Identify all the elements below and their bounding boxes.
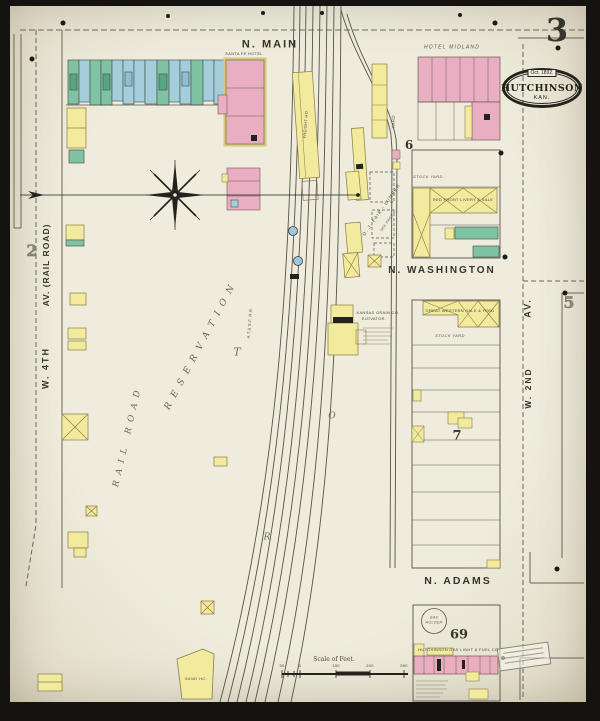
street-n-adams: N. ADAMS bbox=[424, 576, 492, 587]
label-hotel-midland: HOTEL MIDLAND bbox=[424, 46, 480, 51]
label-grain-elevator: ELEVATOR. bbox=[362, 317, 387, 321]
label-great-western: GREAT WESTERN SALE & FEED bbox=[426, 309, 495, 313]
street-w-4th: W. 4TH bbox=[42, 347, 51, 389]
label-gas-holder-1: GAS bbox=[430, 616, 439, 620]
stone-row-buildings bbox=[66, 60, 228, 105]
label-santa-fe-hotel: SANTA FE HOTEL bbox=[225, 52, 263, 56]
stray-letter: O bbox=[328, 413, 335, 422]
stamp-date: Oct. 1892. bbox=[527, 69, 556, 77]
label-red-front-livery: RED FRONT LIVERY & SALE bbox=[433, 198, 493, 202]
stamp-state: KAN. bbox=[534, 95, 551, 101]
stray-letter: T bbox=[233, 347, 240, 358]
scale-tick-0: 0 bbox=[299, 664, 302, 668]
library-stamp-line bbox=[505, 657, 545, 664]
water-tanks bbox=[289, 227, 303, 280]
sanborn-map-sheet: 3 Oct. 1892. HUTCHINSON KAN. N. MAIN N. … bbox=[0, 0, 600, 721]
block-number-2: 2 bbox=[26, 243, 37, 259]
hotel-midland-block bbox=[418, 57, 500, 140]
scale-bar bbox=[282, 670, 408, 678]
stray-letter: R bbox=[264, 534, 271, 543]
street-av-east: AV. bbox=[524, 298, 533, 318]
block-number-6: 6 bbox=[405, 139, 413, 151]
label-grain-co: KANSAS GRAIN CO. bbox=[356, 311, 399, 315]
block-number-69: 69 bbox=[450, 629, 468, 642]
street-n-washington: N. WASHINGTON bbox=[388, 266, 495, 276]
label-sand-house: SAND HO. bbox=[185, 677, 208, 681]
block-6 bbox=[412, 150, 500, 258]
block-number-5: 5 bbox=[563, 295, 574, 311]
map-linework bbox=[0, 0, 600, 721]
label-gas-works: HUTCHINSON GAS LIGHT & FUEL CO. bbox=[418, 648, 500, 652]
block-number-7: 7 bbox=[452, 430, 461, 443]
street-w-2nd: W. 2ND bbox=[524, 367, 533, 408]
scale-tick-100: 100 bbox=[332, 664, 340, 668]
city-stamp: Oct. 1892. HUTCHINSON KAN. bbox=[502, 68, 582, 108]
street-n-main: N. MAIN bbox=[242, 40, 298, 51]
sheet-number: 3 bbox=[546, 14, 568, 46]
scale-tick-50: 50 bbox=[279, 664, 284, 668]
sand-house-building bbox=[177, 649, 214, 699]
label-yard: YARD bbox=[392, 115, 397, 129]
label-stock-yard-7: STOCK YARD bbox=[435, 334, 465, 338]
street-av-railroad: AV. (RAIL ROAD) bbox=[42, 224, 51, 307]
scale-tick-300: 300 bbox=[400, 664, 408, 668]
label-stock-yard-6: STOCK YARD bbox=[413, 175, 443, 179]
stamp-city: HUTCHINSON bbox=[501, 83, 583, 94]
scale-tick-200: 200 bbox=[366, 664, 374, 668]
label-gas-holder-2: HOLDER bbox=[426, 621, 443, 625]
santa-fe-hotel-building bbox=[218, 59, 265, 210]
